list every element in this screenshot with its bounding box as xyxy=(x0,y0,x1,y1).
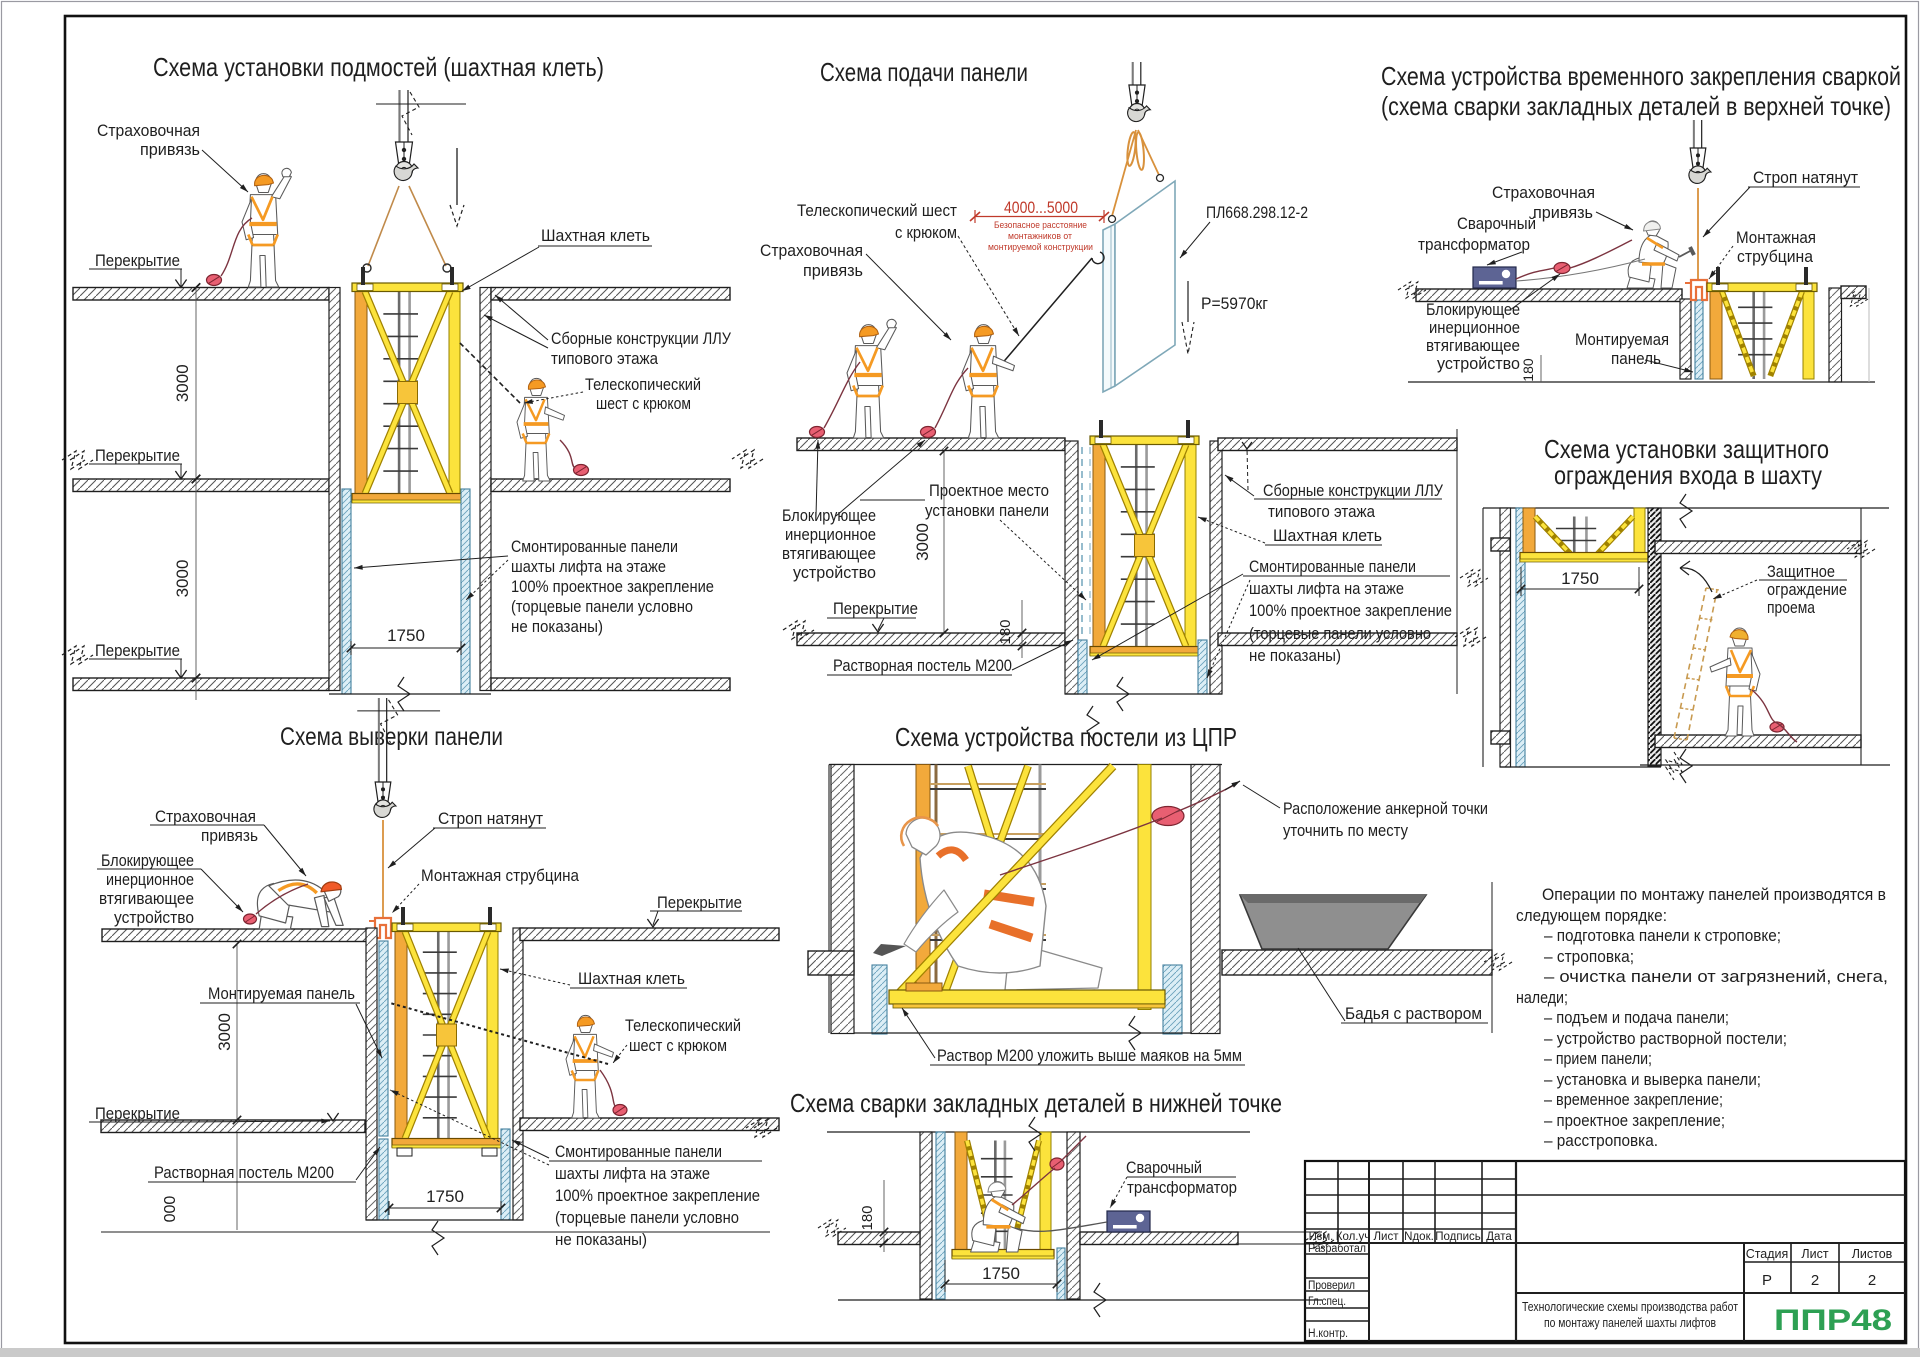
svg-text:монтажников от: монтажников от xyxy=(1008,231,1073,242)
svg-text:шахты лифта на этаже: шахты лифта на этаже xyxy=(511,557,666,576)
svg-text:Безопасное расстояние: Безопасное расстояние xyxy=(994,220,1087,231)
svg-text:Проверил: Проверил xyxy=(1308,1280,1355,1292)
svg-text:Перекрытие: Перекрытие xyxy=(95,251,180,270)
svg-text:Страховочная: Страховочная xyxy=(1492,183,1595,202)
svg-text:1750: 1750 xyxy=(387,626,425,645)
svg-text:ограждения входа в шахту: ограждения входа в шахту xyxy=(1554,460,1822,490)
svg-text:Р: Р xyxy=(1762,1272,1772,1289)
svg-text:– проектное закрепление;: – проектное закрепление; xyxy=(1544,1112,1725,1130)
svg-text:– подъем и подача панели;: – подъем и подача панели; xyxy=(1544,1009,1729,1027)
svg-text:монтируемой конструкции: монтируемой конструкции xyxy=(988,242,1093,253)
svg-text:Н.контр.: Н.контр. xyxy=(1308,1328,1348,1340)
svg-text:Технологические схемы производ: Технологические схемы производства работ xyxy=(1522,1300,1738,1314)
svg-text:3000: 3000 xyxy=(215,1013,234,1051)
svg-text:– расстроповка.: – расстроповка. xyxy=(1544,1132,1658,1150)
svg-text:следующем порядке:: следующем порядке: xyxy=(1516,907,1667,925)
svg-text:Подпись: Подпись xyxy=(1435,1231,1481,1243)
svg-text:не показаны): не показаны) xyxy=(555,1230,647,1249)
svg-text:Nдок.: Nдок. xyxy=(1404,1231,1434,1243)
svg-text:наледи;: наледи; xyxy=(1516,989,1568,1007)
svg-text:Схема устройства постели из ЦП: Схема устройства постели из ЦПР xyxy=(895,722,1237,752)
svg-text:Перекрытие: Перекрытие xyxy=(833,599,918,618)
svg-text:Перекрытие: Перекрытие xyxy=(95,641,180,660)
svg-text:установки панели: установки панели xyxy=(925,501,1049,520)
svg-text:2: 2 xyxy=(1868,1272,1876,1289)
svg-text:Сварочный: Сварочный xyxy=(1126,1158,1202,1177)
svg-text:– прием панели;: – прием панели; xyxy=(1544,1050,1652,1068)
svg-text:Схема выверки панели: Схема выверки панели xyxy=(280,723,503,751)
svg-text:Гл.спец.: Гл.спец. xyxy=(1308,1296,1346,1308)
svg-text:шахты лифта на этаже: шахты лифта на этаже xyxy=(555,1164,710,1183)
svg-text:Схема устройства временного за: Схема устройства временного закрепления … xyxy=(1381,61,1901,91)
svg-text:Телескопический: Телескопический xyxy=(585,375,701,394)
svg-text:Смонтированные панели: Смонтированные панели xyxy=(555,1142,722,1161)
svg-text:Стадия: Стадия xyxy=(1746,1247,1789,1261)
svg-text:трансформатор: трансформатор xyxy=(1418,235,1530,254)
svg-text:3000: 3000 xyxy=(173,560,192,598)
svg-text:устройство: устройство xyxy=(1437,354,1520,373)
svg-text:панель: панель xyxy=(1611,349,1661,368)
svg-text:Кол.уч: Кол.уч xyxy=(1336,1231,1371,1243)
svg-text:втягивающее: втягивающее xyxy=(782,544,876,563)
svg-text:уточнить по месту: уточнить по месту xyxy=(1283,821,1408,840)
svg-text:проема: проема xyxy=(1767,598,1815,617)
svg-text:устройство: устройство xyxy=(793,563,876,582)
svg-text:3000: 3000 xyxy=(913,523,932,561)
svg-text:000: 000 xyxy=(162,1196,179,1223)
svg-text:по монтажу панелей шахты лифто: по монтажу панелей шахты лифтов xyxy=(1544,1316,1716,1330)
svg-text:1750: 1750 xyxy=(1561,569,1599,588)
svg-text:инерционное: инерционное xyxy=(785,525,876,544)
svg-text:ПЛ668.298.12-2: ПЛ668.298.12-2 xyxy=(1206,203,1308,222)
svg-text:Перекрытие: Перекрытие xyxy=(95,446,180,465)
svg-text:180: 180 xyxy=(997,619,1014,644)
svg-text:2: 2 xyxy=(1811,1272,1819,1289)
svg-text:Монтируемая панель: Монтируемая панель xyxy=(208,984,355,1003)
svg-text:Схема сварки закладных деталей: Схема сварки закладных деталей в нижней … xyxy=(790,1088,1282,1118)
svg-text:не показаны): не показаны) xyxy=(511,617,603,636)
svg-text:Изм.: Изм. xyxy=(1309,1231,1334,1243)
svg-text:100% проектное закрепление: 100% проектное закрепление xyxy=(555,1186,760,1205)
svg-text:шест с крюком: шест с крюком xyxy=(596,394,691,413)
svg-text:– временное закрепление;: – временное закрепление; xyxy=(1544,1091,1723,1109)
svg-text:Разработал: Разработал xyxy=(1308,1243,1366,1255)
svg-text:Р=5970кг: Р=5970кг xyxy=(1201,294,1268,313)
svg-text:Расположение анкерной точки: Расположение анкерной точки xyxy=(1283,799,1488,818)
svg-text:типового этажа: типового этажа xyxy=(1268,502,1375,521)
svg-text:Шахтная клеть: Шахтная клеть xyxy=(1273,526,1382,545)
svg-text:Схема установки подмостей (шах: Схема установки подмостей (шахтная клеть… xyxy=(153,52,604,82)
svg-text:1750: 1750 xyxy=(426,1187,464,1206)
svg-text:трансформатор: трансформатор xyxy=(1127,1178,1237,1197)
svg-text:(схема сварки закладных детале: (схема сварки закладных деталей в верхне… xyxy=(1381,91,1891,121)
svg-text:втягивающее: втягивающее xyxy=(1426,336,1520,355)
svg-text:– строповка;: – строповка; xyxy=(1544,948,1634,966)
svg-text:3000: 3000 xyxy=(173,364,192,402)
svg-text:Сборные конструкции ЛЛУ: Сборные конструкции ЛЛУ xyxy=(551,329,731,348)
svg-text:привязь: привязь xyxy=(201,826,258,845)
svg-text:Страховочная: Страховочная xyxy=(155,807,256,826)
svg-text:Монтажная струбцина: Монтажная струбцина xyxy=(421,866,579,885)
svg-text:не показаны): не показаны) xyxy=(1249,646,1341,665)
svg-text:Монтажная: Монтажная xyxy=(1736,228,1816,247)
svg-text:типового этажа: типового этажа xyxy=(551,349,658,368)
svg-text:100% проектное закрепление: 100% проектное закрепление xyxy=(511,577,714,596)
svg-text:Телескопический: Телескопический xyxy=(625,1016,741,1035)
svg-text:Перекрытие: Перекрытие xyxy=(657,893,742,912)
svg-text:Смонтированные панели: Смонтированные панели xyxy=(1249,557,1416,576)
svg-text:Схема подачи панели: Схема подачи панели xyxy=(820,57,1028,87)
svg-text:Строп натянут: Строп натянут xyxy=(1753,168,1858,187)
svg-text:Шахтная клеть: Шахтная клеть xyxy=(541,226,650,245)
svg-text:Растворная постель М200: Растворная постель М200 xyxy=(833,656,1012,675)
svg-text:привязь: привязь xyxy=(1533,203,1593,222)
svg-text:ППР48: ППР48 xyxy=(1774,1304,1892,1337)
svg-text:4000...5000: 4000...5000 xyxy=(1004,198,1078,217)
svg-text:Проектное место: Проектное место xyxy=(929,481,1049,500)
svg-text:180: 180 xyxy=(1520,358,1536,382)
svg-text:устройство: устройство xyxy=(114,908,194,927)
svg-text:Блокирующее: Блокирующее xyxy=(1426,300,1520,319)
svg-text:Лист: Лист xyxy=(1374,1231,1400,1243)
svg-text:Операции по монтажу панелей пр: Операции по монтажу панелей производятся… xyxy=(1542,886,1886,904)
svg-text:Дата: Дата xyxy=(1486,1231,1512,1243)
svg-text:– установка и выверка панели;: – установка и выверка панели; xyxy=(1544,1071,1761,1089)
svg-text:Лист: Лист xyxy=(1801,1247,1828,1261)
svg-text:(торцевые панели условно: (торцевые панели условно xyxy=(555,1208,739,1227)
svg-text:Страховочная: Страховочная xyxy=(97,121,200,140)
svg-text:Сборные конструкции ЛЛУ: Сборные конструкции ЛЛУ xyxy=(1263,481,1443,500)
svg-text:Смонтированные панели: Смонтированные панели xyxy=(511,537,678,556)
svg-text:– подготовка панели к строповк: – подготовка панели к строповке; xyxy=(1544,927,1781,945)
svg-text:Раствор М200 уложить выше маяк: Раствор М200 уложить выше маяков на 5мм xyxy=(937,1046,1242,1065)
svg-text:струбцина: струбцина xyxy=(1737,247,1813,266)
svg-text:Телескопический шест: Телескопический шест xyxy=(797,201,957,220)
svg-text:Монтируемая: Монтируемая xyxy=(1575,330,1669,349)
svg-text:шест с крюком: шест с крюком xyxy=(629,1036,727,1055)
svg-text:Блокирующее: Блокирующее xyxy=(101,851,194,870)
svg-text:Блокирующее: Блокирующее xyxy=(782,506,876,525)
svg-text:шахты лифта на этаже: шахты лифта на этаже xyxy=(1249,579,1404,598)
svg-text:Листов: Листов xyxy=(1852,1247,1893,1261)
svg-text:– устройство растворной постел: – устройство растворной постели; xyxy=(1544,1030,1787,1048)
svg-text:инерционное: инерционное xyxy=(106,870,194,889)
svg-text:Перекрытие: Перекрытие xyxy=(95,1104,180,1123)
svg-text:– очистка панели от загрязнени: – очистка панели от загрязнений, снега, xyxy=(1544,968,1888,986)
svg-text:180: 180 xyxy=(859,1205,876,1230)
svg-text:инерционное: инерционное xyxy=(1429,318,1520,337)
svg-text:Растворная постель М200: Растворная постель М200 xyxy=(154,1163,334,1182)
svg-text:с крюком: с крюком xyxy=(895,223,957,242)
svg-text:привязь: привязь xyxy=(140,140,200,159)
svg-text:Бадья с раствором: Бадья с раствором xyxy=(1345,1004,1482,1023)
svg-text:Страховочная: Страховочная xyxy=(760,241,863,260)
svg-text:Защитное: Защитное xyxy=(1767,562,1835,581)
svg-text:(торцевые панели условно: (торцевые панели условно xyxy=(511,597,693,616)
svg-text:1750: 1750 xyxy=(982,1264,1020,1283)
svg-text:втягивающее: втягивающее xyxy=(99,889,194,908)
svg-text:Шахтная клеть: Шахтная клеть xyxy=(578,969,685,988)
svg-text:(торцевые панели условно: (торцевые панели условно xyxy=(1249,624,1431,643)
svg-text:Строп натянут: Строп натянут xyxy=(438,809,543,828)
svg-text:100% проектное закрепление: 100% проектное закрепление xyxy=(1249,601,1452,620)
svg-text:привязь: привязь xyxy=(803,261,863,280)
svg-text:ограждение: ограждение xyxy=(1767,580,1847,599)
svg-text:Сварочный: Сварочный xyxy=(1457,214,1536,233)
